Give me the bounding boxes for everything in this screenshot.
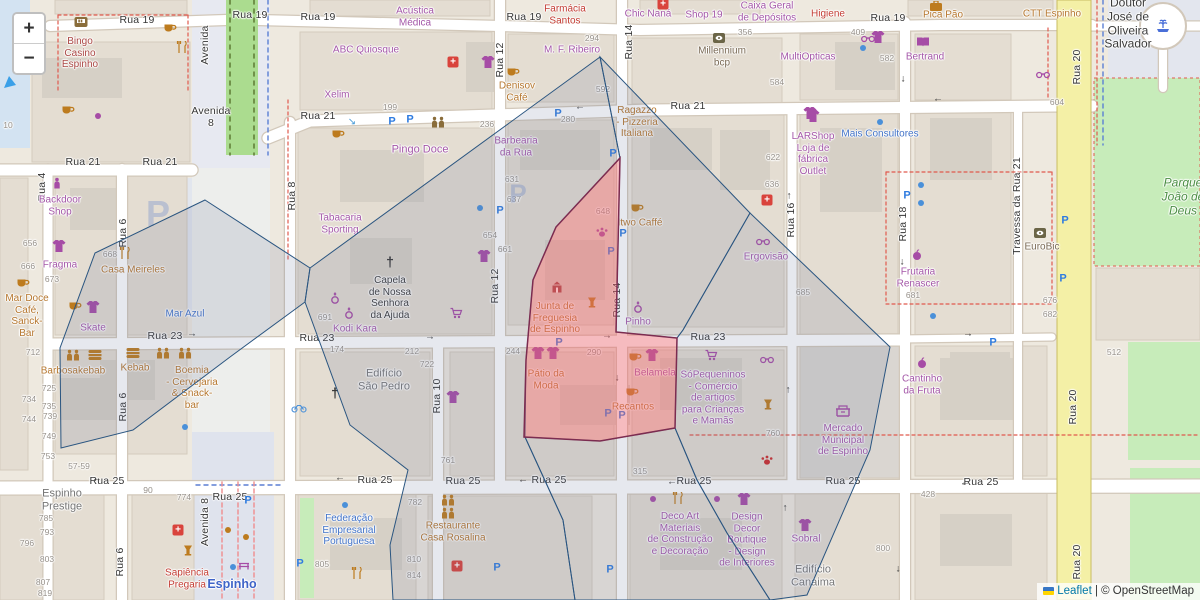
one-way-arrow: ← xyxy=(335,472,345,484)
parking-icon: P xyxy=(296,563,303,564)
place-label: Bertrand xyxy=(906,51,944,63)
place-label: Parque João de Deus xyxy=(1162,176,1200,217)
place-label: Sapiência Pregaria xyxy=(165,568,209,591)
house-number: 356 xyxy=(738,28,752,38)
dot-icon xyxy=(342,502,348,508)
place-label: EuroBic xyxy=(1024,241,1059,253)
street-label: Rua 21 xyxy=(65,156,100,168)
house-number: 725 xyxy=(42,384,56,394)
place-label: Xelim xyxy=(324,89,349,101)
place-label: Mar Doce Café, Sanck- Bar xyxy=(5,293,48,339)
street-label: Rua 19 xyxy=(506,11,541,23)
book-icon xyxy=(917,38,929,47)
one-way-arrow: ↓ xyxy=(896,563,901,575)
dot-icon xyxy=(230,564,236,570)
glasses-icon xyxy=(861,35,875,43)
place-label: Farmácia Santos xyxy=(544,4,586,27)
glasses-icon xyxy=(1036,71,1050,79)
tri-icon xyxy=(4,76,16,88)
fork-icon xyxy=(177,41,188,53)
shirt-icon xyxy=(804,107,817,119)
one-way-arrow: ← xyxy=(960,477,970,489)
cup-icon xyxy=(62,105,75,116)
dot-icon xyxy=(225,527,231,533)
parking-icon: P xyxy=(989,342,996,343)
osm-credit: | © OpenStreetMap xyxy=(1092,585,1194,597)
parking-icon: P xyxy=(406,119,413,120)
dot-icon xyxy=(918,200,924,206)
house-number: 676 xyxy=(1043,296,1057,306)
place-label: Espinho xyxy=(207,577,256,591)
shirt-icon xyxy=(53,240,66,252)
place-label: Pingo Doce xyxy=(392,144,449,157)
place-label: Chic Naná xyxy=(625,8,672,20)
parking-icon: P xyxy=(388,121,395,122)
shirt-icon xyxy=(482,56,495,68)
place-label: Higiene xyxy=(811,8,845,20)
place-label: Pica Pão xyxy=(923,9,963,21)
house-number: 735 xyxy=(42,402,56,412)
place-label: CTT Espinho xyxy=(1023,8,1081,20)
one-way-arrow: ↓ xyxy=(900,256,905,268)
place-label: Federação Empresarial Portuguesa xyxy=(322,513,375,548)
apple-icon xyxy=(917,358,928,369)
house-number: 803 xyxy=(40,555,54,565)
street-label: Rua 19 xyxy=(300,11,335,23)
house-number: 236 xyxy=(480,120,494,130)
one-way-arrow: ← xyxy=(933,93,943,105)
dot-icon xyxy=(930,313,936,319)
house-number: 636 xyxy=(765,180,779,190)
parking-icon: P xyxy=(1061,220,1068,221)
parking-icon: P xyxy=(903,195,910,196)
fountain-icon xyxy=(1155,19,1171,33)
street-label: Rua 25 xyxy=(963,476,998,488)
one-way-arrow: ↘ xyxy=(348,116,356,128)
cup-icon xyxy=(332,129,345,140)
dot-icon xyxy=(243,534,249,540)
place-label: Cantinho da Fruta xyxy=(902,374,942,397)
fork-icon xyxy=(352,567,363,579)
one-way-arrow: → xyxy=(963,328,973,340)
street-label: Rua 18 xyxy=(897,206,909,241)
street-label: Rua 25 xyxy=(357,474,392,486)
zoom-control: + − xyxy=(12,12,46,75)
house-number: 681 xyxy=(906,291,920,301)
street-label: Rua 8 xyxy=(286,181,298,210)
place-label: Tabacaria Sporting xyxy=(318,213,361,236)
house-number: 428 xyxy=(921,490,935,500)
one-way-arrow: ↑ xyxy=(787,190,792,202)
case-icon xyxy=(930,1,942,11)
house-number: 712 xyxy=(26,348,40,358)
one-way-arrow: ← xyxy=(92,473,102,485)
place-label: ABC Quiosque xyxy=(333,44,399,56)
street-label: Rua 25 xyxy=(89,475,124,487)
street-label: Rua 21 xyxy=(670,100,705,112)
people-icon xyxy=(431,117,445,128)
house-number: 785 xyxy=(39,514,53,524)
shirt-icon xyxy=(807,110,820,122)
house-number: 774 xyxy=(177,493,191,503)
house-number: 793 xyxy=(40,528,54,538)
bank-icon xyxy=(713,33,725,43)
cup-icon xyxy=(17,278,30,289)
house-number: 512 xyxy=(1107,348,1121,358)
house-number: 57-59 xyxy=(68,462,90,472)
house-number: 800 xyxy=(876,544,890,554)
house-number: 819 xyxy=(38,589,52,599)
parking-icon: P xyxy=(244,500,251,501)
street-label: Rua 20 xyxy=(1067,389,1079,424)
house-number: 666 xyxy=(21,262,35,272)
house-number: 673 xyxy=(45,275,59,285)
house-number: 656 xyxy=(23,239,37,249)
map-canvas[interactable]: Rua 19Rua 19Rua 19Rua 19Rua 19Rua 21Rua … xyxy=(0,0,1200,600)
place-label: Bingo Casino Espinho xyxy=(62,36,98,71)
ukraine-flag-icon xyxy=(1043,587,1054,595)
cup-icon xyxy=(507,67,520,78)
house-number: 90 xyxy=(143,486,152,496)
street-label: Rua 12 xyxy=(494,42,506,77)
street-label: Rua 20 xyxy=(1071,544,1083,579)
place-label: M. F. Ribeiro xyxy=(544,44,600,56)
place-label: Doutor José de Oliveira Salvador xyxy=(1104,0,1151,52)
place-label: Backdoor Shop xyxy=(39,195,81,218)
place-label: Frutaria Renascer xyxy=(897,267,940,290)
slot-icon xyxy=(75,16,88,28)
place-label: LARShop Loja de fábrica Outlet xyxy=(792,131,835,177)
wine-icon xyxy=(183,546,193,557)
house-number: 294 xyxy=(585,34,599,44)
house-number: 584 xyxy=(770,78,784,88)
house-number: 807 xyxy=(36,578,50,588)
street-label: Rua 21 xyxy=(300,110,335,122)
place-label: Shop 19 xyxy=(685,9,722,21)
one-way-arrow: ↓ xyxy=(901,73,906,85)
house-number: 805 xyxy=(315,560,329,570)
street-label: Rua 21 xyxy=(142,156,177,168)
dot-icon xyxy=(95,113,101,119)
dot-icon xyxy=(877,119,883,125)
pharmacy-icon: + xyxy=(762,195,773,206)
apple-icon xyxy=(912,250,923,261)
zoom-out-button[interactable]: − xyxy=(14,43,44,73)
bank-icon xyxy=(1034,228,1046,238)
house-number: 796 xyxy=(20,539,34,549)
street-label: Avenida xyxy=(199,25,211,64)
bike-icon xyxy=(292,404,307,413)
street-label: Rua 25 xyxy=(212,491,247,503)
place-label: Mais Consultores xyxy=(841,128,918,140)
pharmacy-icon: + xyxy=(173,525,184,536)
dot-icon xyxy=(918,182,924,188)
cup-icon xyxy=(164,23,177,34)
place-label: Acústica Médica xyxy=(396,6,434,29)
house-number: 682 xyxy=(1043,310,1057,320)
street-label: Rua 19 xyxy=(119,14,154,26)
dot-icon xyxy=(860,45,866,51)
parking-icon: P xyxy=(1059,278,1066,279)
house-number: 582 xyxy=(880,54,894,64)
shirt-icon xyxy=(872,31,885,43)
leaflet-link[interactable]: Leaflet xyxy=(1057,585,1092,597)
street-label: Rua 4 xyxy=(36,172,48,201)
house-number: 10 xyxy=(3,121,12,131)
street-label: Rua 19 xyxy=(870,12,905,24)
zoom-in-button[interactable]: + xyxy=(14,14,44,43)
place-label: Millennium bcp xyxy=(698,46,746,69)
dot-icon xyxy=(182,424,188,430)
place-label: Espinho Prestige xyxy=(42,487,82,512)
attribution: Leaflet | © OpenStreetMap xyxy=(1037,583,1200,600)
street-label: Rua 16 xyxy=(785,202,797,237)
place-label: Fragma xyxy=(43,259,77,271)
place-label: Denisov Café xyxy=(499,81,535,104)
house-number: 199 xyxy=(383,103,397,113)
person-icon xyxy=(53,178,61,189)
pharmacy-icon: + xyxy=(448,57,459,68)
pharmacy-icon: + xyxy=(658,0,669,10)
street-label: Avenida 8 xyxy=(191,105,230,129)
street-label: Travessa da Rua 21 xyxy=(1011,157,1023,255)
house-number: 749 xyxy=(42,432,56,442)
house-number: 409 xyxy=(851,28,865,38)
house-number: 622 xyxy=(766,153,780,163)
street-label: Rua 19 xyxy=(232,9,267,21)
house-number: 753 xyxy=(41,452,55,462)
street-label: Rua 20 xyxy=(1071,49,1083,84)
house-number: 734 xyxy=(22,395,36,405)
street-label: Rua 14 xyxy=(623,24,635,59)
bench-icon xyxy=(238,561,250,570)
house-number: 739 xyxy=(43,412,57,422)
street-label: Avenida 8 xyxy=(199,498,211,546)
place-label: MultiOpticas xyxy=(780,51,835,63)
house-number: 604 xyxy=(1050,98,1064,108)
place-label: Caixa Geral de Depósitos xyxy=(738,1,796,24)
street-label: Rua 6 xyxy=(114,547,126,576)
house-number: 744 xyxy=(22,415,36,425)
